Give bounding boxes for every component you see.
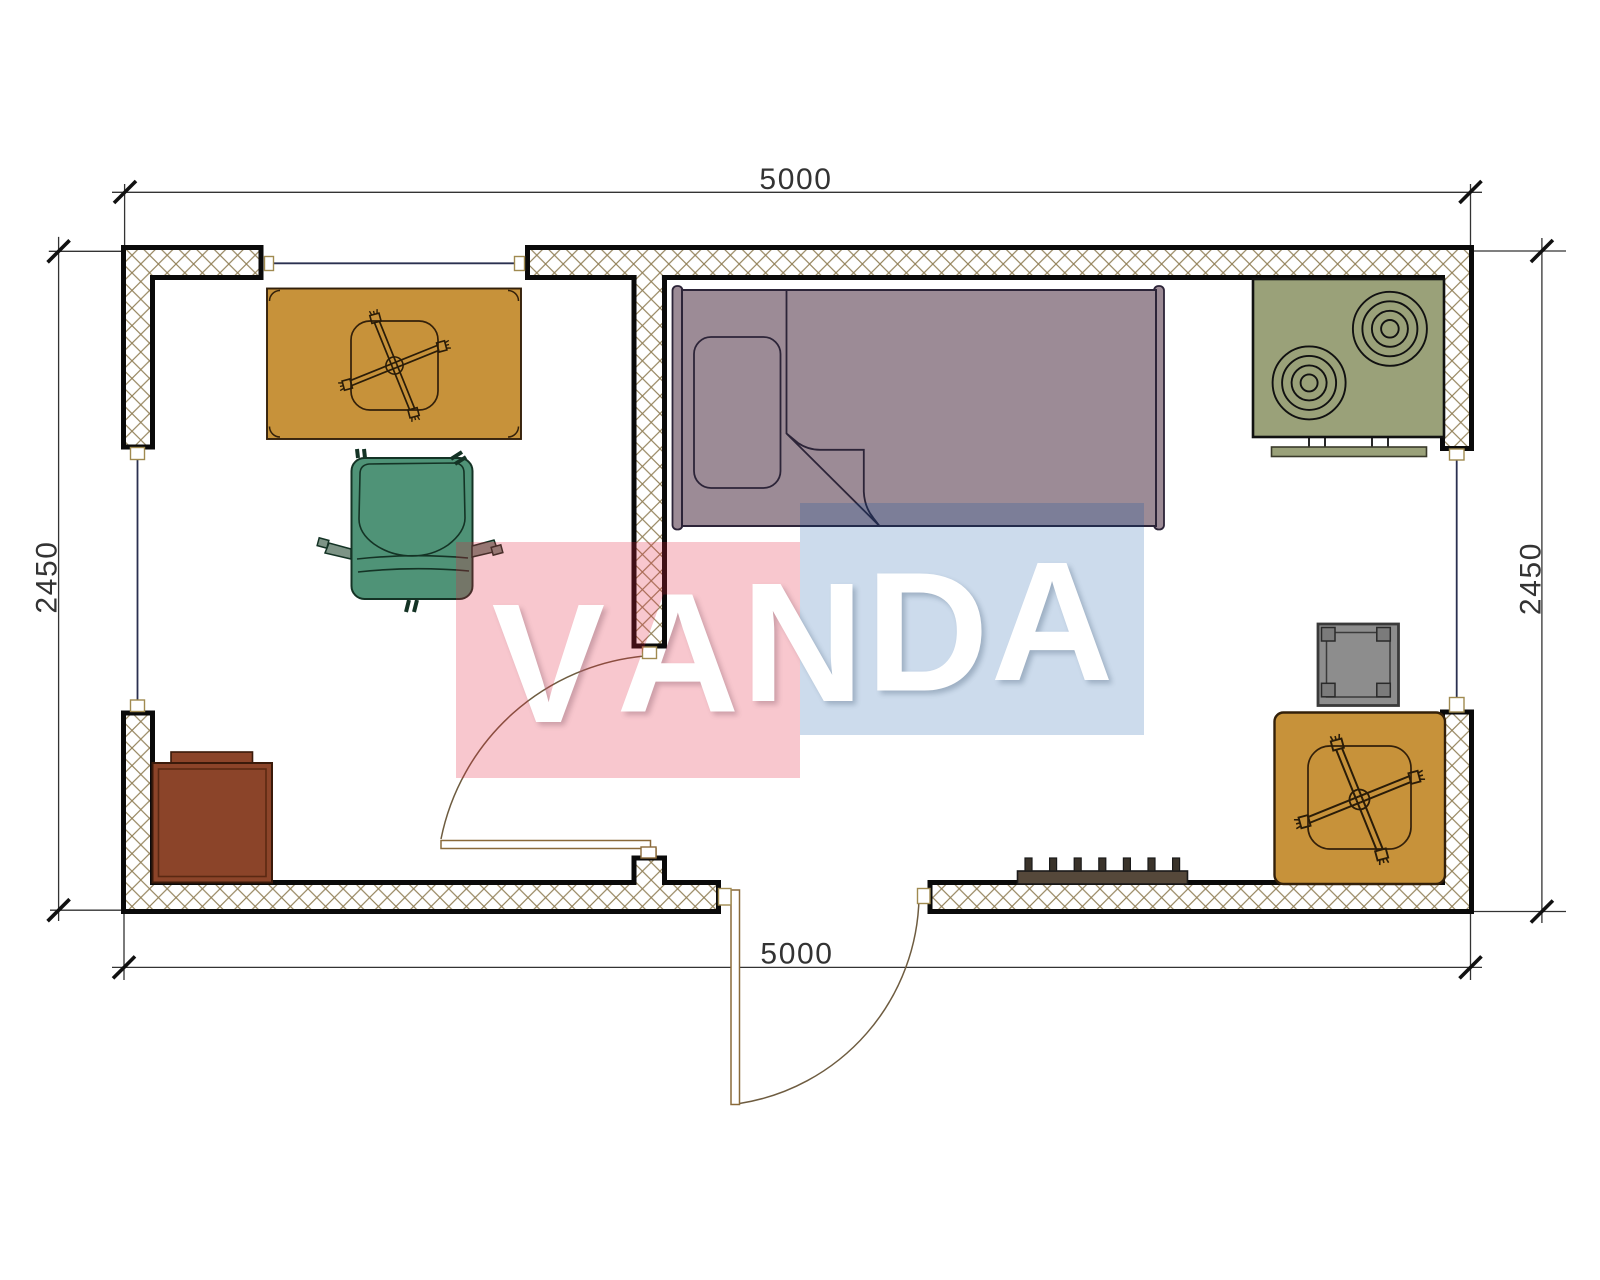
svg-text:5000: 5000 [760,938,833,971]
svg-text:5000: 5000 [759,163,832,196]
svg-text:2450: 2450 [31,540,64,613]
svg-text:2450: 2450 [1515,542,1548,615]
